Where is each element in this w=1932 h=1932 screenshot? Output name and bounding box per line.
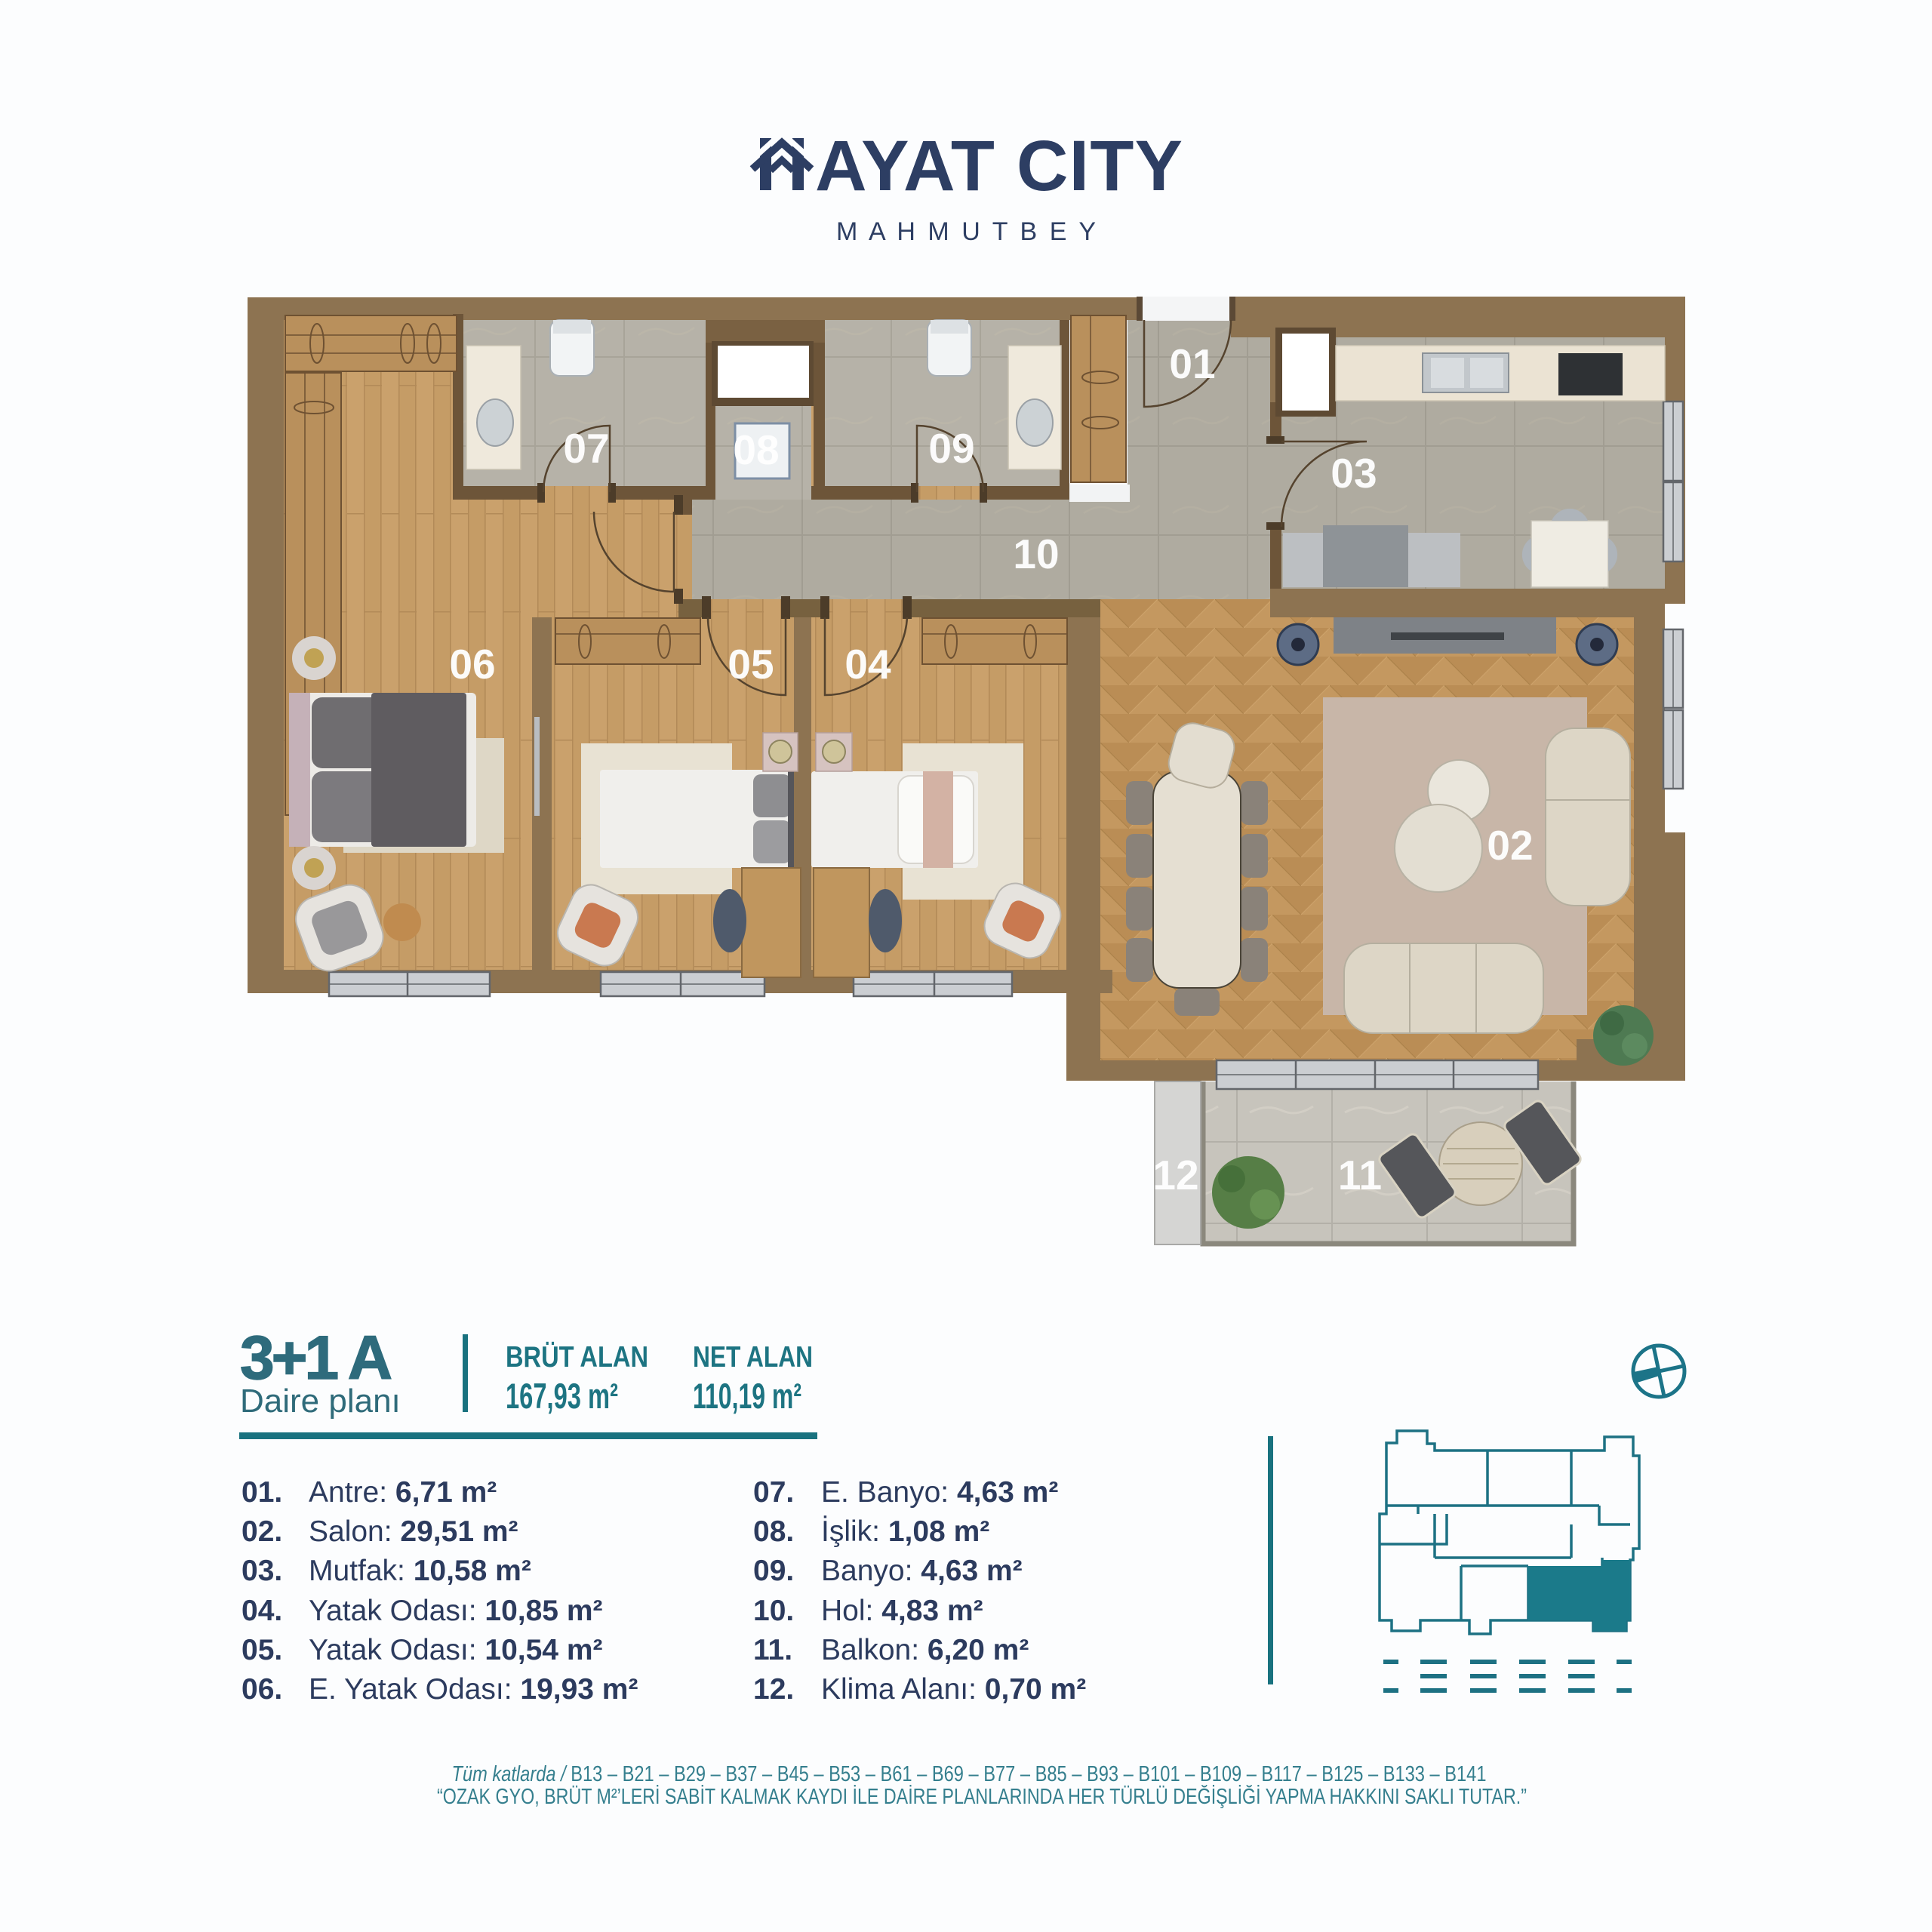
svg-text:11: 11 (1338, 1152, 1382, 1198)
svg-text:06.: 06. (241, 1673, 282, 1706)
svg-text:Hol: 4,83 m²: Hol: 4,83 m² (821, 1595, 983, 1627)
svg-text:“OZAK GYO, BRÜT M²’LERİ SABİT: “OZAK GYO, BRÜT M²’LERİ SABİT KALMAK KAY… (437, 1784, 1527, 1809)
svg-text:09: 09 (928, 425, 974, 472)
svg-text:02: 02 (1487, 822, 1533, 869)
svg-text:02.: 02. (241, 1515, 282, 1548)
svg-text:M A H M U T B E Y: M A H M U T B E Y (836, 217, 1096, 246)
svg-text:Salon: 29,51 m²: Salon: 29,51 m² (309, 1515, 518, 1548)
svg-text:Mutfak: 10,58 m²: Mutfak: 10,58 m² (309, 1555, 531, 1587)
svg-text:08: 08 (733, 426, 779, 473)
svg-text:03.: 03. (241, 1555, 282, 1587)
svg-text:BRÜT ALAN: BRÜT ALAN (506, 1341, 648, 1374)
svg-text:Klima Alanı: 0,70 m²: Klima Alanı: 0,70 m² (821, 1673, 1086, 1706)
svg-text:10.: 10. (753, 1595, 794, 1627)
svg-text:04: 04 (844, 641, 891, 688)
svg-text:03: 03 (1331, 450, 1377, 497)
svg-text:Yatak Odası: 10,54 m²: Yatak Odası: 10,54 m² (309, 1634, 603, 1666)
svg-text:Tüm katlarda / B13 – B21 – B29: Tüm katlarda / B13 – B21 – B29 – B37 – B… (452, 1762, 1487, 1786)
svg-text:E. Yatak Odası: 19,93 m²: E. Yatak Odası: 19,93 m² (309, 1673, 638, 1706)
svg-text:09.: 09. (753, 1555, 794, 1587)
svg-text:01.: 01. (241, 1476, 282, 1509)
svg-text:İşlik: 1,08 m²: İşlik: 1,08 m² (821, 1515, 989, 1548)
svg-text:01: 01 (1169, 340, 1215, 387)
svg-text:AYAT CITY: AYAT CITY (815, 126, 1183, 206)
svg-text:05.: 05. (241, 1634, 282, 1666)
svg-text:05: 05 (728, 641, 774, 688)
svg-text:NET ALAN: NET ALAN (693, 1341, 813, 1374)
svg-text:06: 06 (449, 641, 495, 688)
svg-text:Yatak Odası: 10,85 m²: Yatak Odası: 10,85 m² (309, 1595, 603, 1627)
svg-text:08.: 08. (753, 1515, 794, 1548)
svg-text:Daire planı: Daire planı (240, 1383, 401, 1420)
svg-text:12.: 12. (753, 1673, 794, 1706)
svg-text:Antre: 6,71 m²: Antre: 6,71 m² (309, 1476, 497, 1509)
svg-text:10: 10 (1013, 531, 1059, 577)
svg-text:04.: 04. (241, 1595, 282, 1627)
svg-text:167,93 m²: 167,93 m² (506, 1376, 618, 1416)
svg-text:11.: 11. (753, 1634, 792, 1666)
svg-text:12: 12 (1152, 1152, 1198, 1198)
svg-text:Banyo: 4,63 m²: Banyo: 4,63 m² (821, 1555, 1023, 1587)
svg-text:Balkon: 6,20 m²: Balkon: 6,20 m² (821, 1634, 1029, 1666)
svg-text:07: 07 (563, 425, 609, 472)
svg-text:110,19 m²: 110,19 m² (693, 1376, 801, 1416)
svg-text:07.: 07. (753, 1476, 794, 1509)
svg-text:E. Banyo: 4,63 m²: E. Banyo: 4,63 m² (821, 1476, 1058, 1509)
